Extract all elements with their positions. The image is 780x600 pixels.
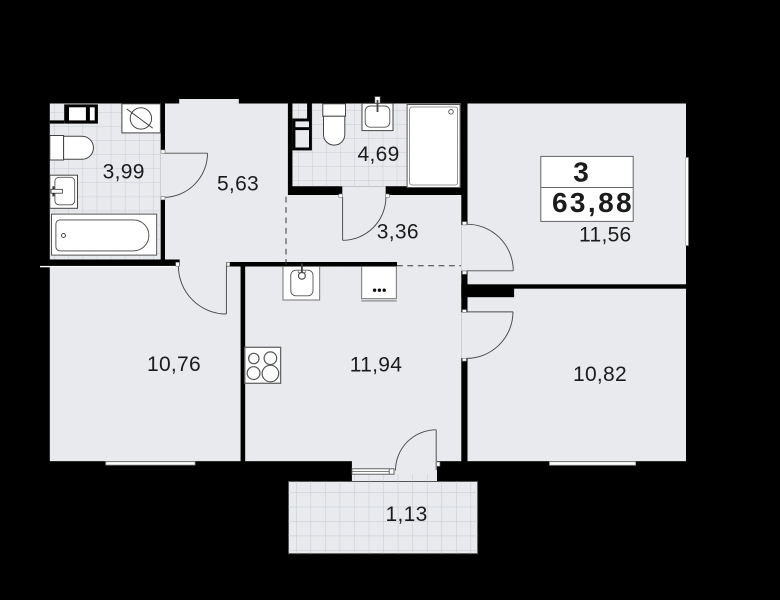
svg-text:3,99: 3,99 (103, 161, 145, 184)
svg-text:4,69: 4,69 (358, 143, 400, 166)
svg-text:11,56: 11,56 (579, 223, 632, 246)
svg-text:3: 3 (573, 156, 589, 187)
svg-text:1,13: 1,13 (386, 503, 428, 526)
svg-text:63,88: 63,88 (552, 187, 634, 218)
svg-text:10,82: 10,82 (573, 363, 627, 386)
svg-text:5,63: 5,63 (217, 173, 259, 196)
svg-text:11,94: 11,94 (350, 354, 403, 377)
svg-text:3,36: 3,36 (377, 221, 419, 244)
svg-text:10,76: 10,76 (147, 353, 201, 376)
